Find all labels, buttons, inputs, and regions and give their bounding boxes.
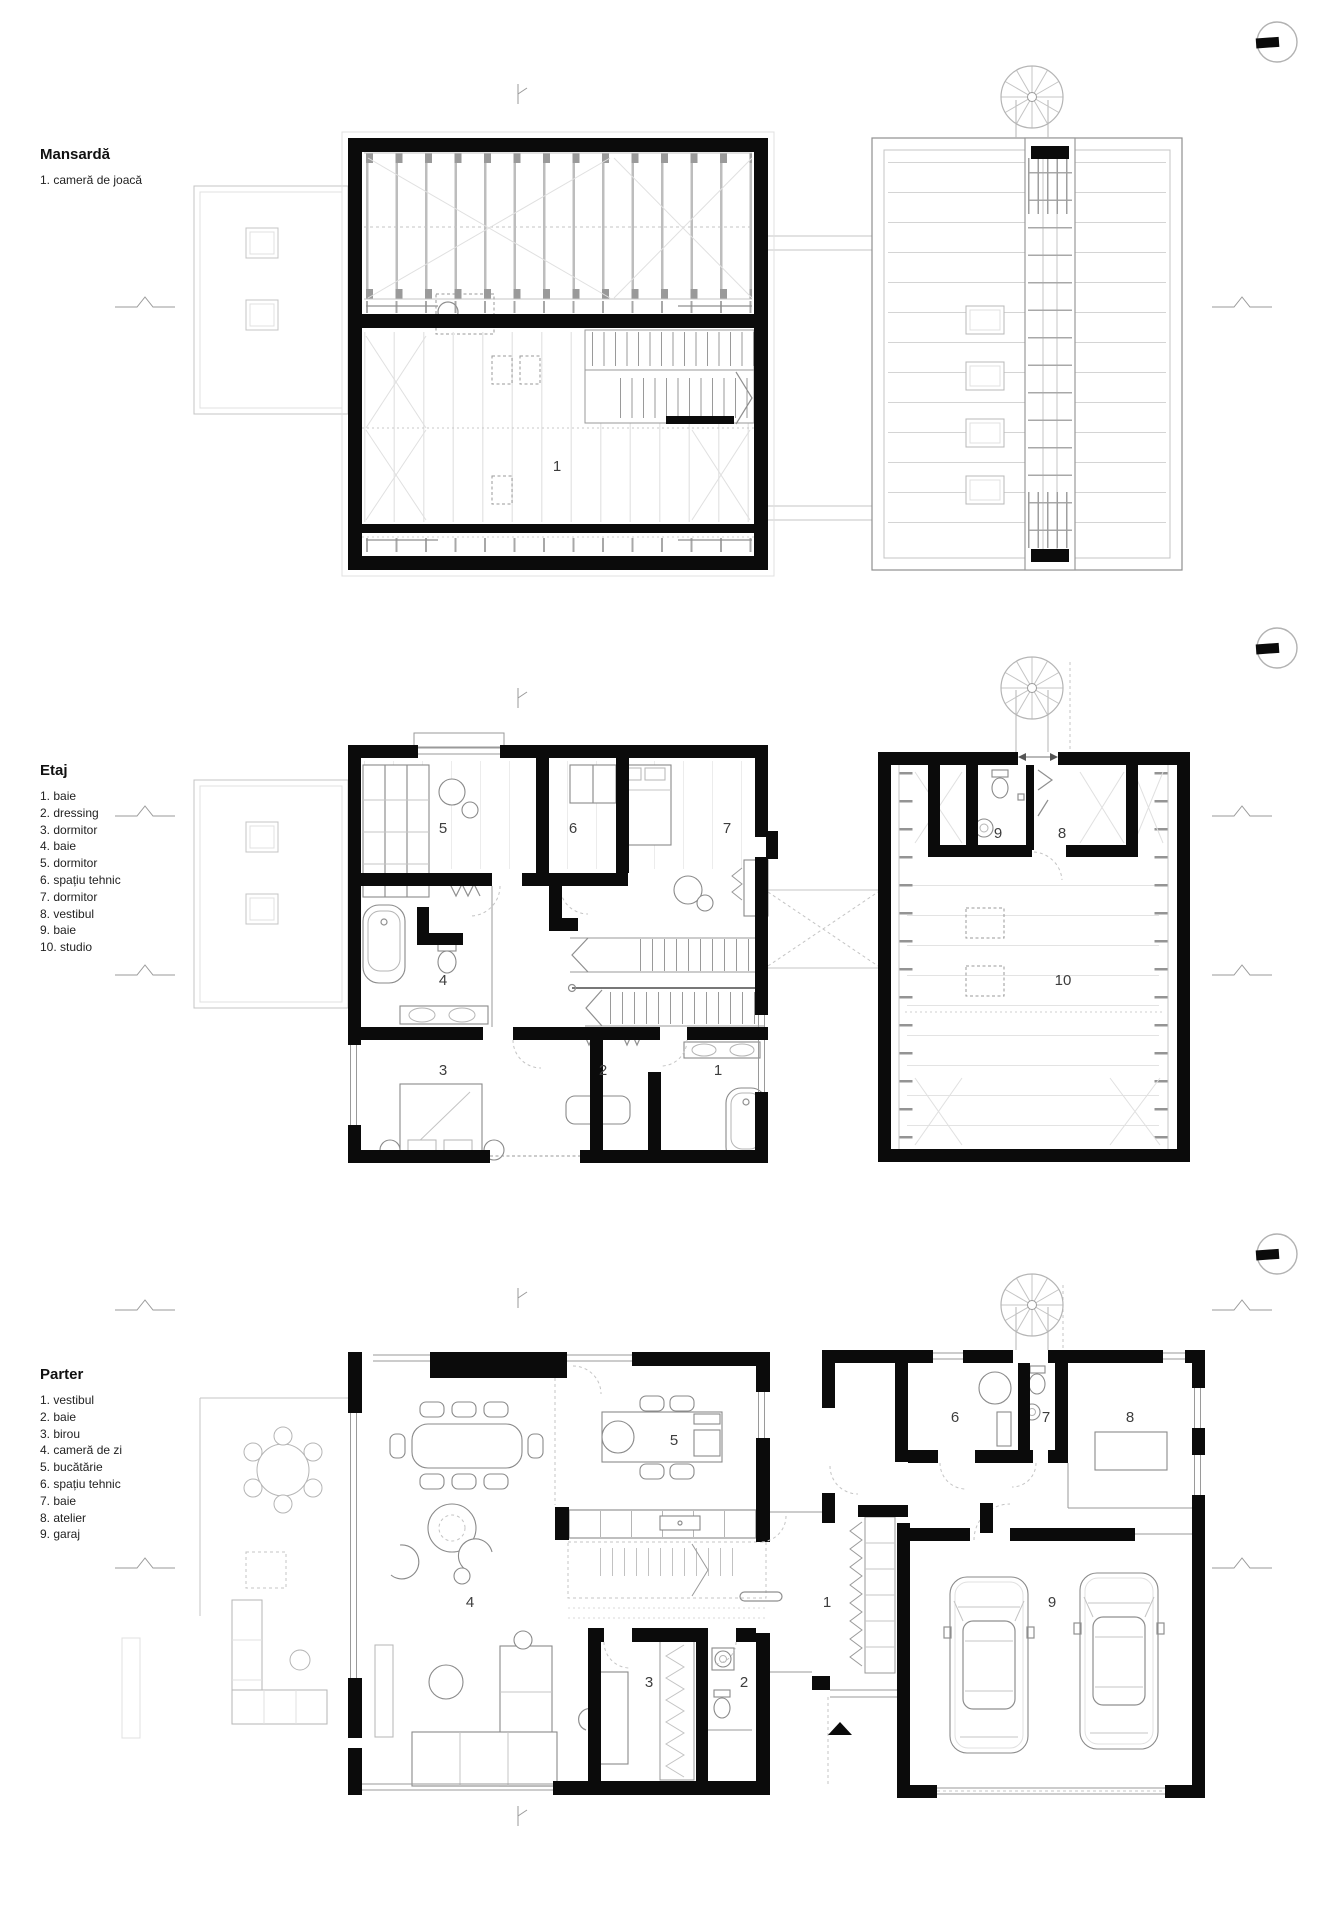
north-marker-icon <box>1256 1234 1297 1274</box>
skylight <box>966 476 1004 504</box>
room-label-camera-de-zi: 4 <box>466 1594 474 1611</box>
plan-mansarda: 1 <box>115 22 1297 576</box>
chair <box>420 1474 444 1489</box>
room-label-baie-9: 9 <box>994 825 1002 842</box>
room-label-baie-7: 7 <box>1042 1409 1050 1426</box>
spiral-staircase-icon <box>1001 1274 1063 1336</box>
staircase <box>569 938 766 1026</box>
room-label-vestibul: 1 <box>823 1594 831 1611</box>
section-break-mark <box>1212 1300 1272 1310</box>
plan-etaj: 5 6 7 4 3 2 1 <box>115 628 1297 1163</box>
section-break-mark <box>115 1558 175 1568</box>
car <box>944 1577 1034 1753</box>
room-label-baie-2: 2 <box>740 1674 748 1691</box>
axis-tick <box>518 688 527 708</box>
chair <box>640 1396 664 1411</box>
plan-parter: 4 5 3 2 <box>115 1234 1297 1826</box>
room-label-vestibul-8: 8 <box>1058 825 1066 842</box>
room-label-atelier: 8 <box>1126 1409 1134 1426</box>
chair <box>484 1474 508 1489</box>
skylight <box>966 306 1004 334</box>
chair <box>670 1396 694 1411</box>
staircase <box>568 1542 782 1618</box>
room-label-bucatarie: 5 <box>670 1432 678 1449</box>
section-break-mark <box>1212 806 1272 816</box>
room-label-dormitor-3: 3 <box>439 1062 447 1079</box>
section-break-mark <box>115 965 175 975</box>
axis-tick <box>518 1288 527 1308</box>
plan-drawings: 1 <box>0 0 1344 1920</box>
skylight <box>966 362 1004 390</box>
room-label-spatiu-tehnic: 6 <box>951 1409 959 1426</box>
terrace-outline <box>194 780 348 1008</box>
car <box>1074 1573 1164 1749</box>
mansarda-right-building <box>872 66 1182 570</box>
chair <box>484 1402 508 1417</box>
parter-right-wing: 6 7 8 1 9 <box>760 1274 1205 1798</box>
room-label-dressing: 2 <box>599 1062 607 1079</box>
north-marker-icon <box>1256 628 1297 668</box>
section-break-mark <box>1212 297 1272 307</box>
entrance-arrow-icon <box>828 1722 852 1735</box>
axis-tick <box>518 84 527 104</box>
chair <box>452 1474 476 1489</box>
staircase <box>585 330 754 424</box>
room-label-garaj: 9 <box>1048 1594 1056 1611</box>
section-break-mark <box>115 297 175 307</box>
etaj-left-building: 5 6 7 4 3 2 1 <box>348 733 778 1163</box>
section-break-mark <box>115 806 175 816</box>
room-label-birou: 3 <box>645 1674 653 1691</box>
north-marker-icon <box>1256 22 1297 62</box>
section-break-mark <box>115 1300 175 1310</box>
chair <box>670 1464 694 1479</box>
room-label-baie-1: 1 <box>714 1062 722 1079</box>
room-label-spatiu-tehnic: 6 <box>569 820 577 837</box>
room-label-dormitor-7: 7 <box>723 820 731 837</box>
section-break-mark <box>1212 965 1272 975</box>
skylight <box>966 419 1004 447</box>
terrace-outline <box>194 186 348 414</box>
plan-sheet: Mansardă 1. cameră de joacă Etaj 1. baie… <box>0 0 1344 1920</box>
spiral-staircase-icon <box>1001 66 1063 128</box>
mansarda-left-building: 1 <box>342 132 774 576</box>
section-break-mark <box>1212 1558 1272 1568</box>
room-label-playroom: 1 <box>553 458 561 475</box>
room-label-dormitor-5: 5 <box>439 820 447 837</box>
spiral-staircase-icon <box>1001 657 1063 719</box>
etaj-right-building: 9 8 10 <box>878 657 1190 1162</box>
parter-main-house: 4 5 3 2 <box>348 1352 782 1795</box>
chair <box>640 1464 664 1479</box>
room-label-baie-4: 4 <box>439 972 447 989</box>
chair <box>452 1402 476 1417</box>
axis-tick <box>518 1806 527 1826</box>
room-label-studio: 10 <box>1055 972 1072 989</box>
chair <box>420 1402 444 1417</box>
